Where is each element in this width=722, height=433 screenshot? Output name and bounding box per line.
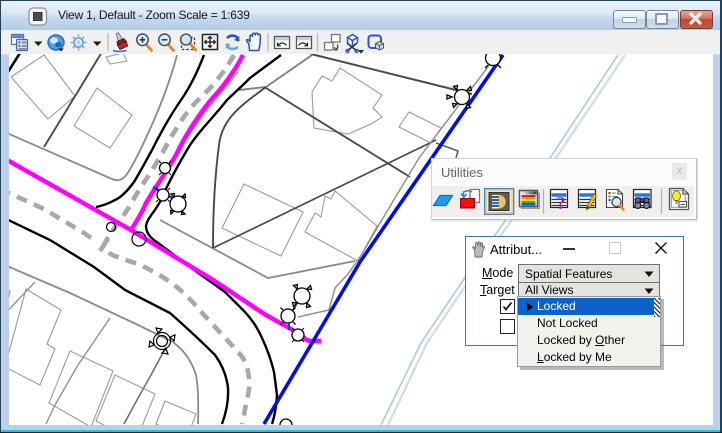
svg-text:?: ?: [557, 193, 566, 213]
